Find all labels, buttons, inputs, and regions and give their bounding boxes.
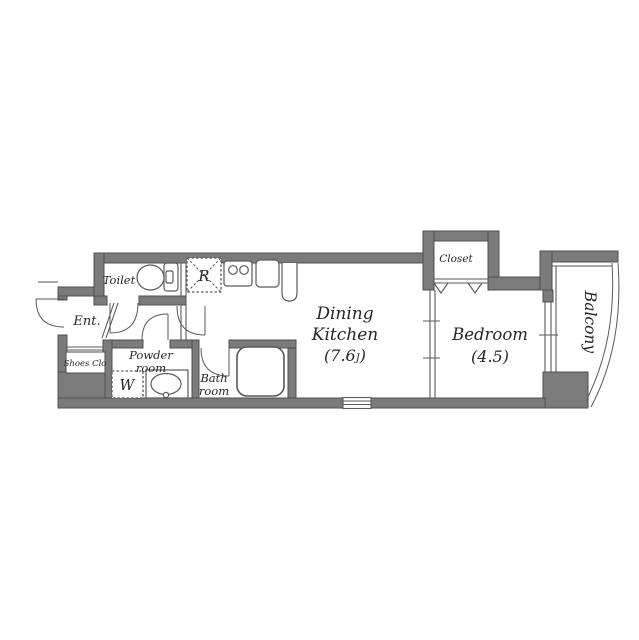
vanity-faucet bbox=[163, 392, 168, 397]
powder-room-label: Powder bbox=[128, 348, 174, 362]
toilet-label: Toilet bbox=[103, 273, 136, 287]
dk-size-prefix: (7.6 bbox=[324, 346, 356, 365]
bathtub-icon bbox=[237, 347, 284, 396]
powder-door-arc bbox=[142, 314, 168, 340]
kitchen-counter-end bbox=[282, 263, 297, 301]
toilet-door-arc bbox=[110, 303, 138, 333]
entrance-door-arc bbox=[36, 299, 64, 327]
dk-bottom-window bbox=[343, 398, 371, 409]
wall-bottom-main bbox=[58, 398, 545, 408]
toilet-bowl-icon bbox=[137, 265, 164, 290]
stove-burner bbox=[229, 266, 238, 275]
wall-closet-left bbox=[423, 231, 434, 290]
dk-size-suffix: ) bbox=[359, 346, 366, 365]
refrigerator-label: R bbox=[198, 269, 210, 285]
dining-kitchen-label: Kitchen bbox=[311, 325, 378, 345]
stove-icon bbox=[224, 261, 252, 286]
toilet-tank-button bbox=[166, 271, 173, 283]
dining-kitchen-label: Dining bbox=[315, 304, 373, 324]
wall-toilet-bottom-left bbox=[94, 296, 107, 305]
shoes-closet-label: Shoes Clo bbox=[64, 359, 107, 369]
balcony-label: Balcony bbox=[581, 290, 599, 354]
kitchen-sink-icon bbox=[256, 260, 279, 287]
powder-room-label: room bbox=[136, 361, 166, 375]
entrance-label: Ent. bbox=[72, 314, 100, 329]
wall-bath-right bbox=[288, 340, 296, 398]
washing-machine-label: W bbox=[120, 378, 136, 394]
wall-closet-right bbox=[488, 231, 499, 277]
vanity-sink-icon bbox=[151, 374, 181, 395]
wall-step-connector bbox=[540, 251, 552, 290]
closet-label: Closet bbox=[439, 253, 473, 265]
closet-folding-door-mark bbox=[468, 283, 482, 293]
bedroom-label: Bedroom bbox=[451, 325, 528, 344]
floor-plan-page: Toilet Ent. Shoes Clo Powder room W R Ba… bbox=[0, 0, 639, 640]
dining-kitchen-size-label: (7.6J) bbox=[324, 346, 366, 365]
wall-toilet-bottom-right bbox=[139, 296, 186, 305]
bedroom-size-label: (4.5) bbox=[471, 347, 509, 366]
wall-bedroom-right-upper bbox=[543, 290, 553, 302]
floor-plan-svg: Toilet Ent. Shoes Clo Powder room W R Ba… bbox=[0, 0, 639, 640]
wall-below-shoes bbox=[58, 372, 105, 398]
bath-room-label: Bath bbox=[199, 371, 227, 385]
bath-room-label: room bbox=[199, 384, 229, 398]
closet-folding-door-mark bbox=[434, 283, 448, 293]
wall-bedroom-right-block bbox=[543, 372, 588, 408]
stove-burner bbox=[240, 266, 249, 275]
